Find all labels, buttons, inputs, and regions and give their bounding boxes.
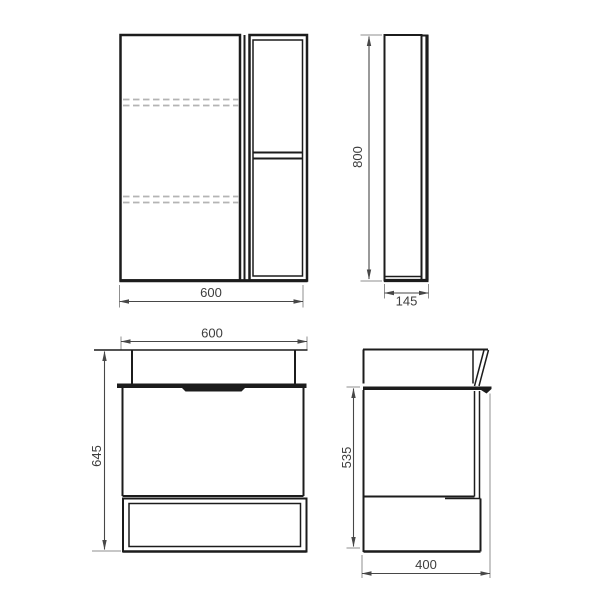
dim-label-mirror-depth: 145 — [396, 294, 418, 309]
technical-drawing-canvas: 600 800 145 600 645 — [0, 0, 600, 600]
dim-label-vanity-depth: 400 — [415, 557, 437, 572]
dim-label-vanity-side-height: 535 — [339, 447, 354, 469]
drawing-svg: 600 800 145 600 645 — [0, 0, 600, 600]
lower-drawer-outer-frame — [123, 499, 307, 552]
vanity-side-view: 535 400 — [339, 350, 491, 579]
dim-label-vanity-height: 645 — [89, 445, 104, 467]
handle-recess — [182, 388, 245, 392]
dim-label-vanity-width: 600 — [201, 326, 223, 341]
countertop-side — [363, 387, 487, 391]
countertop — [117, 384, 307, 389]
lower-drawer-inner-frame — [129, 504, 301, 547]
basin-slant-edge-outer — [479, 350, 489, 386]
dim-label-mirror-height: 800 — [350, 146, 365, 168]
countertop-front-lip — [481, 387, 492, 394]
mirror-cabinet-side-view: 800 145 — [350, 35, 428, 309]
side-view-body — [385, 35, 422, 281]
mirror-panel — [121, 35, 241, 281]
vanity-front-view: 600 645 — [89, 326, 307, 552]
dim-label-mirror-width: 600 — [200, 285, 222, 300]
basin-slant-edge-inner — [475, 350, 485, 386]
mirror-cabinet-front-view: 600 — [120, 35, 308, 308]
